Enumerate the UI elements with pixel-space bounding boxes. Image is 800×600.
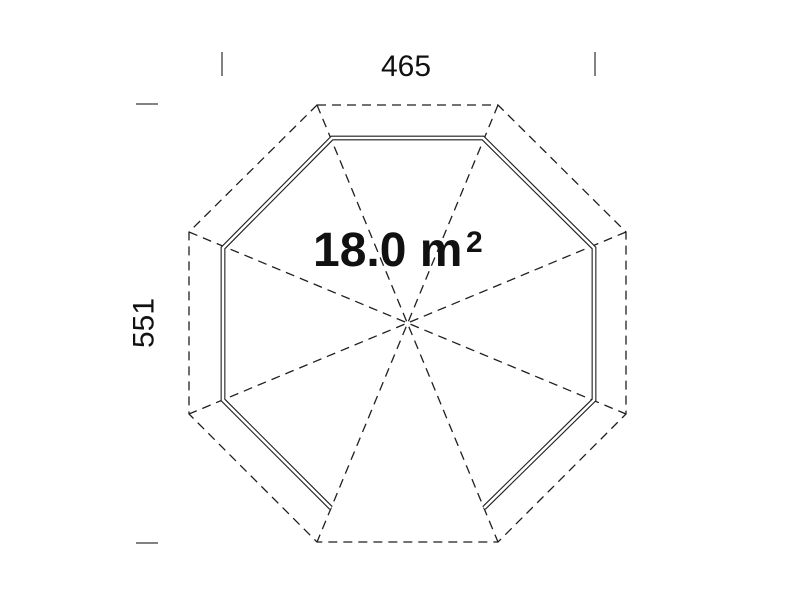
rafter-diagonal-tl-br [317,105,498,542]
area-label: 18.0 m [313,224,462,277]
height-dimension-label: 551 [128,298,161,348]
floor-plan-canvas: 465 551 18.0 m 2 [0,0,800,600]
width-dimension-label: 465 [381,50,431,83]
area-label-superscript: 2 [466,226,483,259]
rafter-diagonal-tr-bl [317,105,498,542]
gazebo-floor-plan-drawing: 465 551 18.0 m 2 [0,0,800,600]
roof-outline-octagon [189,105,626,542]
